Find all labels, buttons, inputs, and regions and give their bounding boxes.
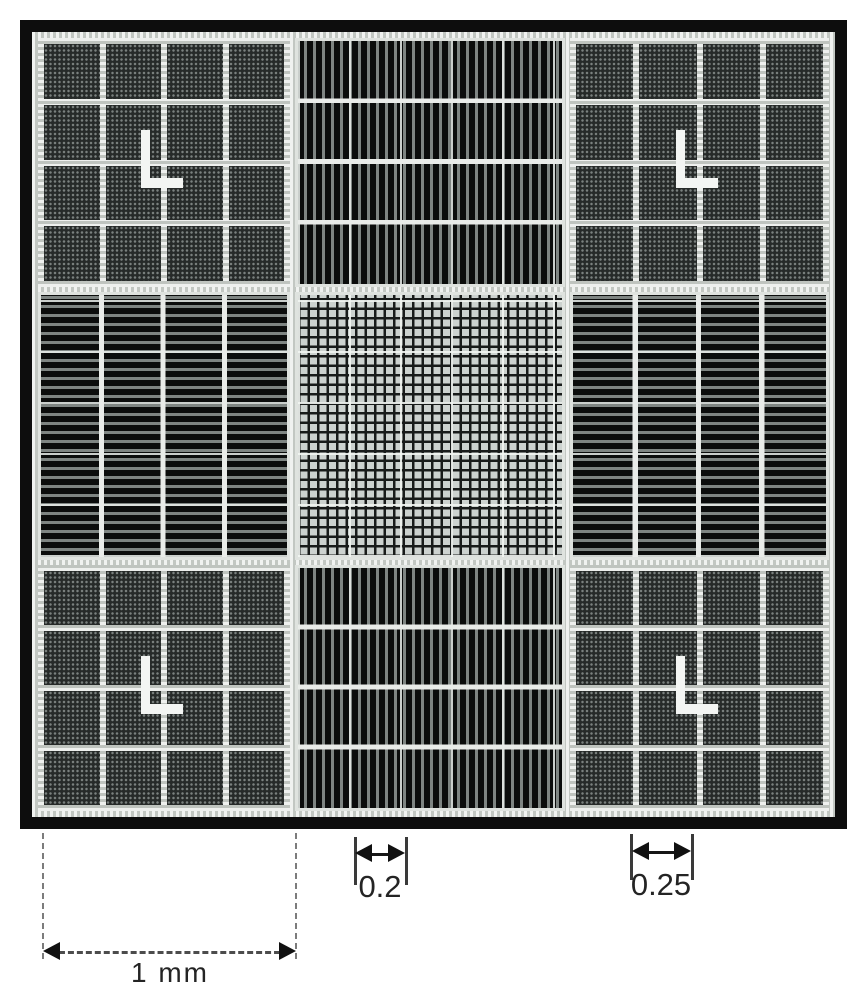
dimension-guide-left — [42, 833, 44, 959]
arrowhead-left-icon — [632, 842, 649, 860]
grid-cell-bottom-left — [38, 565, 290, 811]
arrowhead-left-icon — [355, 844, 372, 862]
grid-cell-top-left — [38, 38, 290, 287]
grid-cell-center — [295, 292, 565, 560]
dimension-arrow-0-25 — [633, 843, 690, 859]
grid-cell-middle-left — [38, 292, 290, 560]
hemocytometer-grid-figure: 1 mm 0.2 0.25 — [0, 0, 866, 1000]
corner-l-mark-bottom-right — [676, 656, 718, 714]
dimension-label-0-2: 0.2 — [342, 869, 418, 905]
corner-l-mark-top-right — [676, 130, 718, 188]
grid-cell-middle-right — [570, 292, 829, 560]
grid-3x3 — [38, 38, 829, 811]
dimension-label-0-25: 0.25 — [623, 867, 699, 903]
chamber-frame — [20, 20, 847, 829]
grid-cell-bottom-center — [295, 565, 565, 811]
grid-cell-top-center — [295, 38, 565, 287]
dimension-arrow-0-2 — [356, 845, 404, 861]
arrowhead-right-icon — [388, 844, 405, 862]
corner-l-mark-top-left — [141, 130, 183, 188]
dimension-guide-right — [295, 833, 297, 959]
dimension-label-1mm: 1 mm — [44, 957, 296, 989]
grid-cell-top-right — [570, 38, 829, 287]
grid-cell-bottom-right — [570, 565, 829, 811]
corner-l-mark-bottom-left — [141, 656, 183, 714]
arrowhead-right-icon — [674, 842, 691, 860]
